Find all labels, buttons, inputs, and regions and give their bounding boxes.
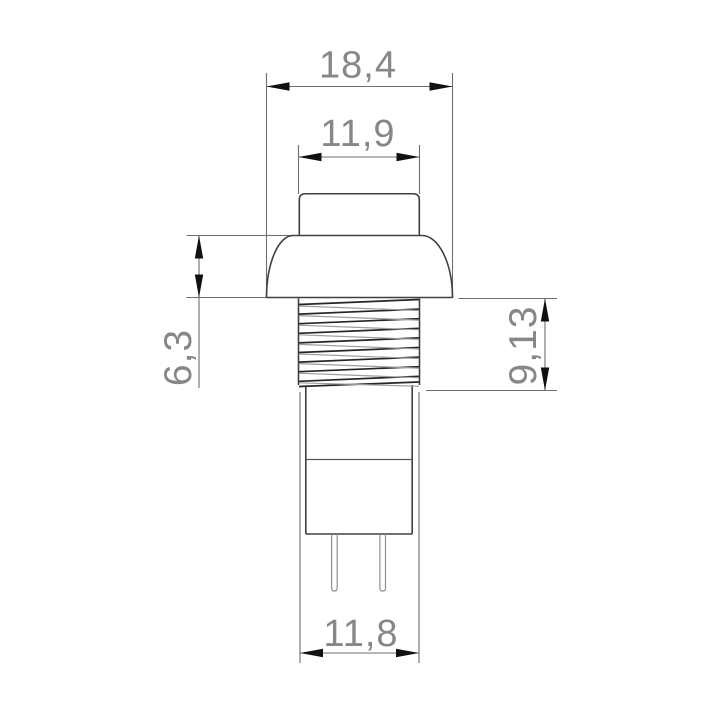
- svg-text:11,8: 11,8: [323, 613, 398, 655]
- svg-text:11,9: 11,9: [320, 113, 395, 155]
- svg-text:6,3: 6,3: [157, 329, 200, 386]
- svg-text:9,13: 9,13: [502, 306, 545, 386]
- svg-text:18,4: 18,4: [319, 45, 397, 87]
